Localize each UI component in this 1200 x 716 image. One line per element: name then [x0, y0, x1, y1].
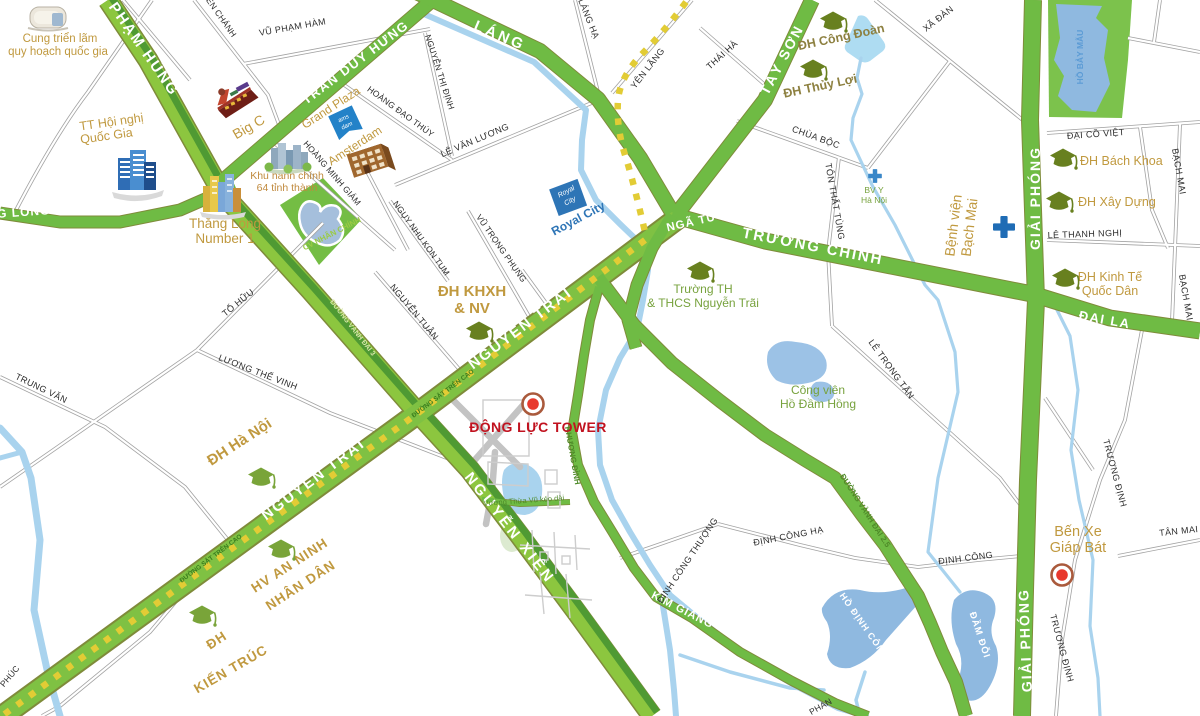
- svg-text:BV Y: BV Y: [864, 185, 884, 195]
- svg-text:ĐỘNG LỰC TOWER: ĐỘNG LỰC TOWER: [469, 418, 607, 435]
- svg-text:64 tỉnh thành: 64 tỉnh thành: [257, 182, 318, 194]
- svg-text:ĐH KHXH: ĐH KHXH: [438, 283, 506, 300]
- svg-text:Number 1: Number 1: [195, 231, 254, 246]
- svg-text:Bến Xe: Bến Xe: [1054, 524, 1102, 540]
- svg-text:HỒ BẢY MẪU: HỒ BẢY MẪU: [1074, 30, 1085, 85]
- svg-text:ĐH Kinh Tế: ĐH Kinh Tế: [1078, 270, 1142, 284]
- svg-text:Hồ Đầm Hồng: Hồ Đầm Hồng: [780, 397, 856, 411]
- svg-text:Cung triển lãm: Cung triển lãm: [23, 33, 98, 45]
- svg-text:ĐH Xây Dựng: ĐH Xây Dựng: [1078, 195, 1156, 209]
- svg-text:ĐH Bách Khoa: ĐH Bách Khoa: [1080, 154, 1163, 168]
- svg-text:& THCS Nguyễn Trãi: & THCS Nguyễn Trãi: [647, 295, 759, 310]
- svg-text:& NV: & NV: [454, 300, 490, 317]
- svg-text:Quốc Dân: Quốc Dân: [1082, 284, 1138, 298]
- svg-text:Giáp Bát: Giáp Bát: [1050, 540, 1106, 556]
- svg-text:Trường TH: Trường TH: [673, 282, 732, 296]
- svg-text:Công viên: Công viên: [791, 383, 845, 397]
- svg-text:Hà Nội: Hà Nội: [861, 195, 887, 205]
- svg-text:GIẢI PHÓNG: GIẢI PHÓNG: [1026, 146, 1043, 250]
- svg-text:quy hoạch quốc gia: quy hoạch quốc gia: [8, 46, 108, 58]
